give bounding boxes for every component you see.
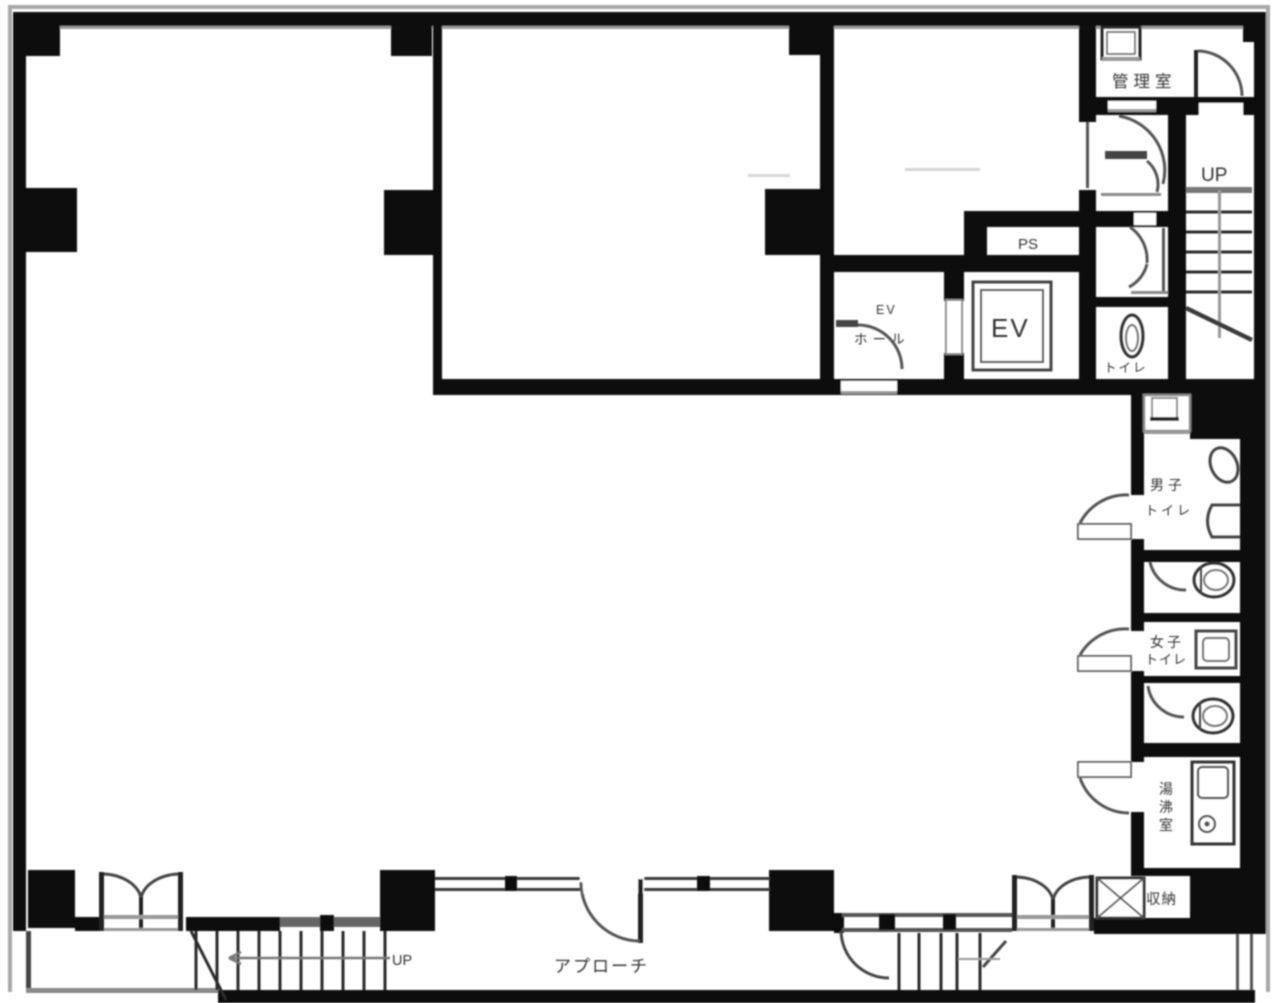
svg-text:PS: PS — [1018, 236, 1038, 253]
svg-text:トイレ: トイレ — [1145, 652, 1187, 667]
svg-text:ホール: ホール — [854, 332, 910, 347]
svg-text:UP: UP — [392, 953, 412, 969]
svg-text:収納: 収納 — [1146, 891, 1177, 908]
svg-text:トイレ: トイレ — [1145, 503, 1193, 518]
svg-text:湯: 湯 — [1159, 781, 1173, 797]
svg-text:管理室: 管理室 — [1112, 72, 1177, 91]
svg-text:トイレ: トイレ — [1104, 361, 1148, 375]
svg-text:UP: UP — [1201, 165, 1227, 186]
svg-text:室: 室 — [1159, 817, 1173, 833]
svg-text:沸: 沸 — [1159, 799, 1173, 815]
svg-text:EV: EV — [876, 303, 897, 317]
svg-text:アプローチ: アプローチ — [554, 957, 649, 976]
svg-text:EV: EV — [991, 313, 1030, 343]
svg-text:女子: 女子 — [1150, 634, 1184, 650]
svg-text:男子: 男子 — [1150, 477, 1186, 493]
